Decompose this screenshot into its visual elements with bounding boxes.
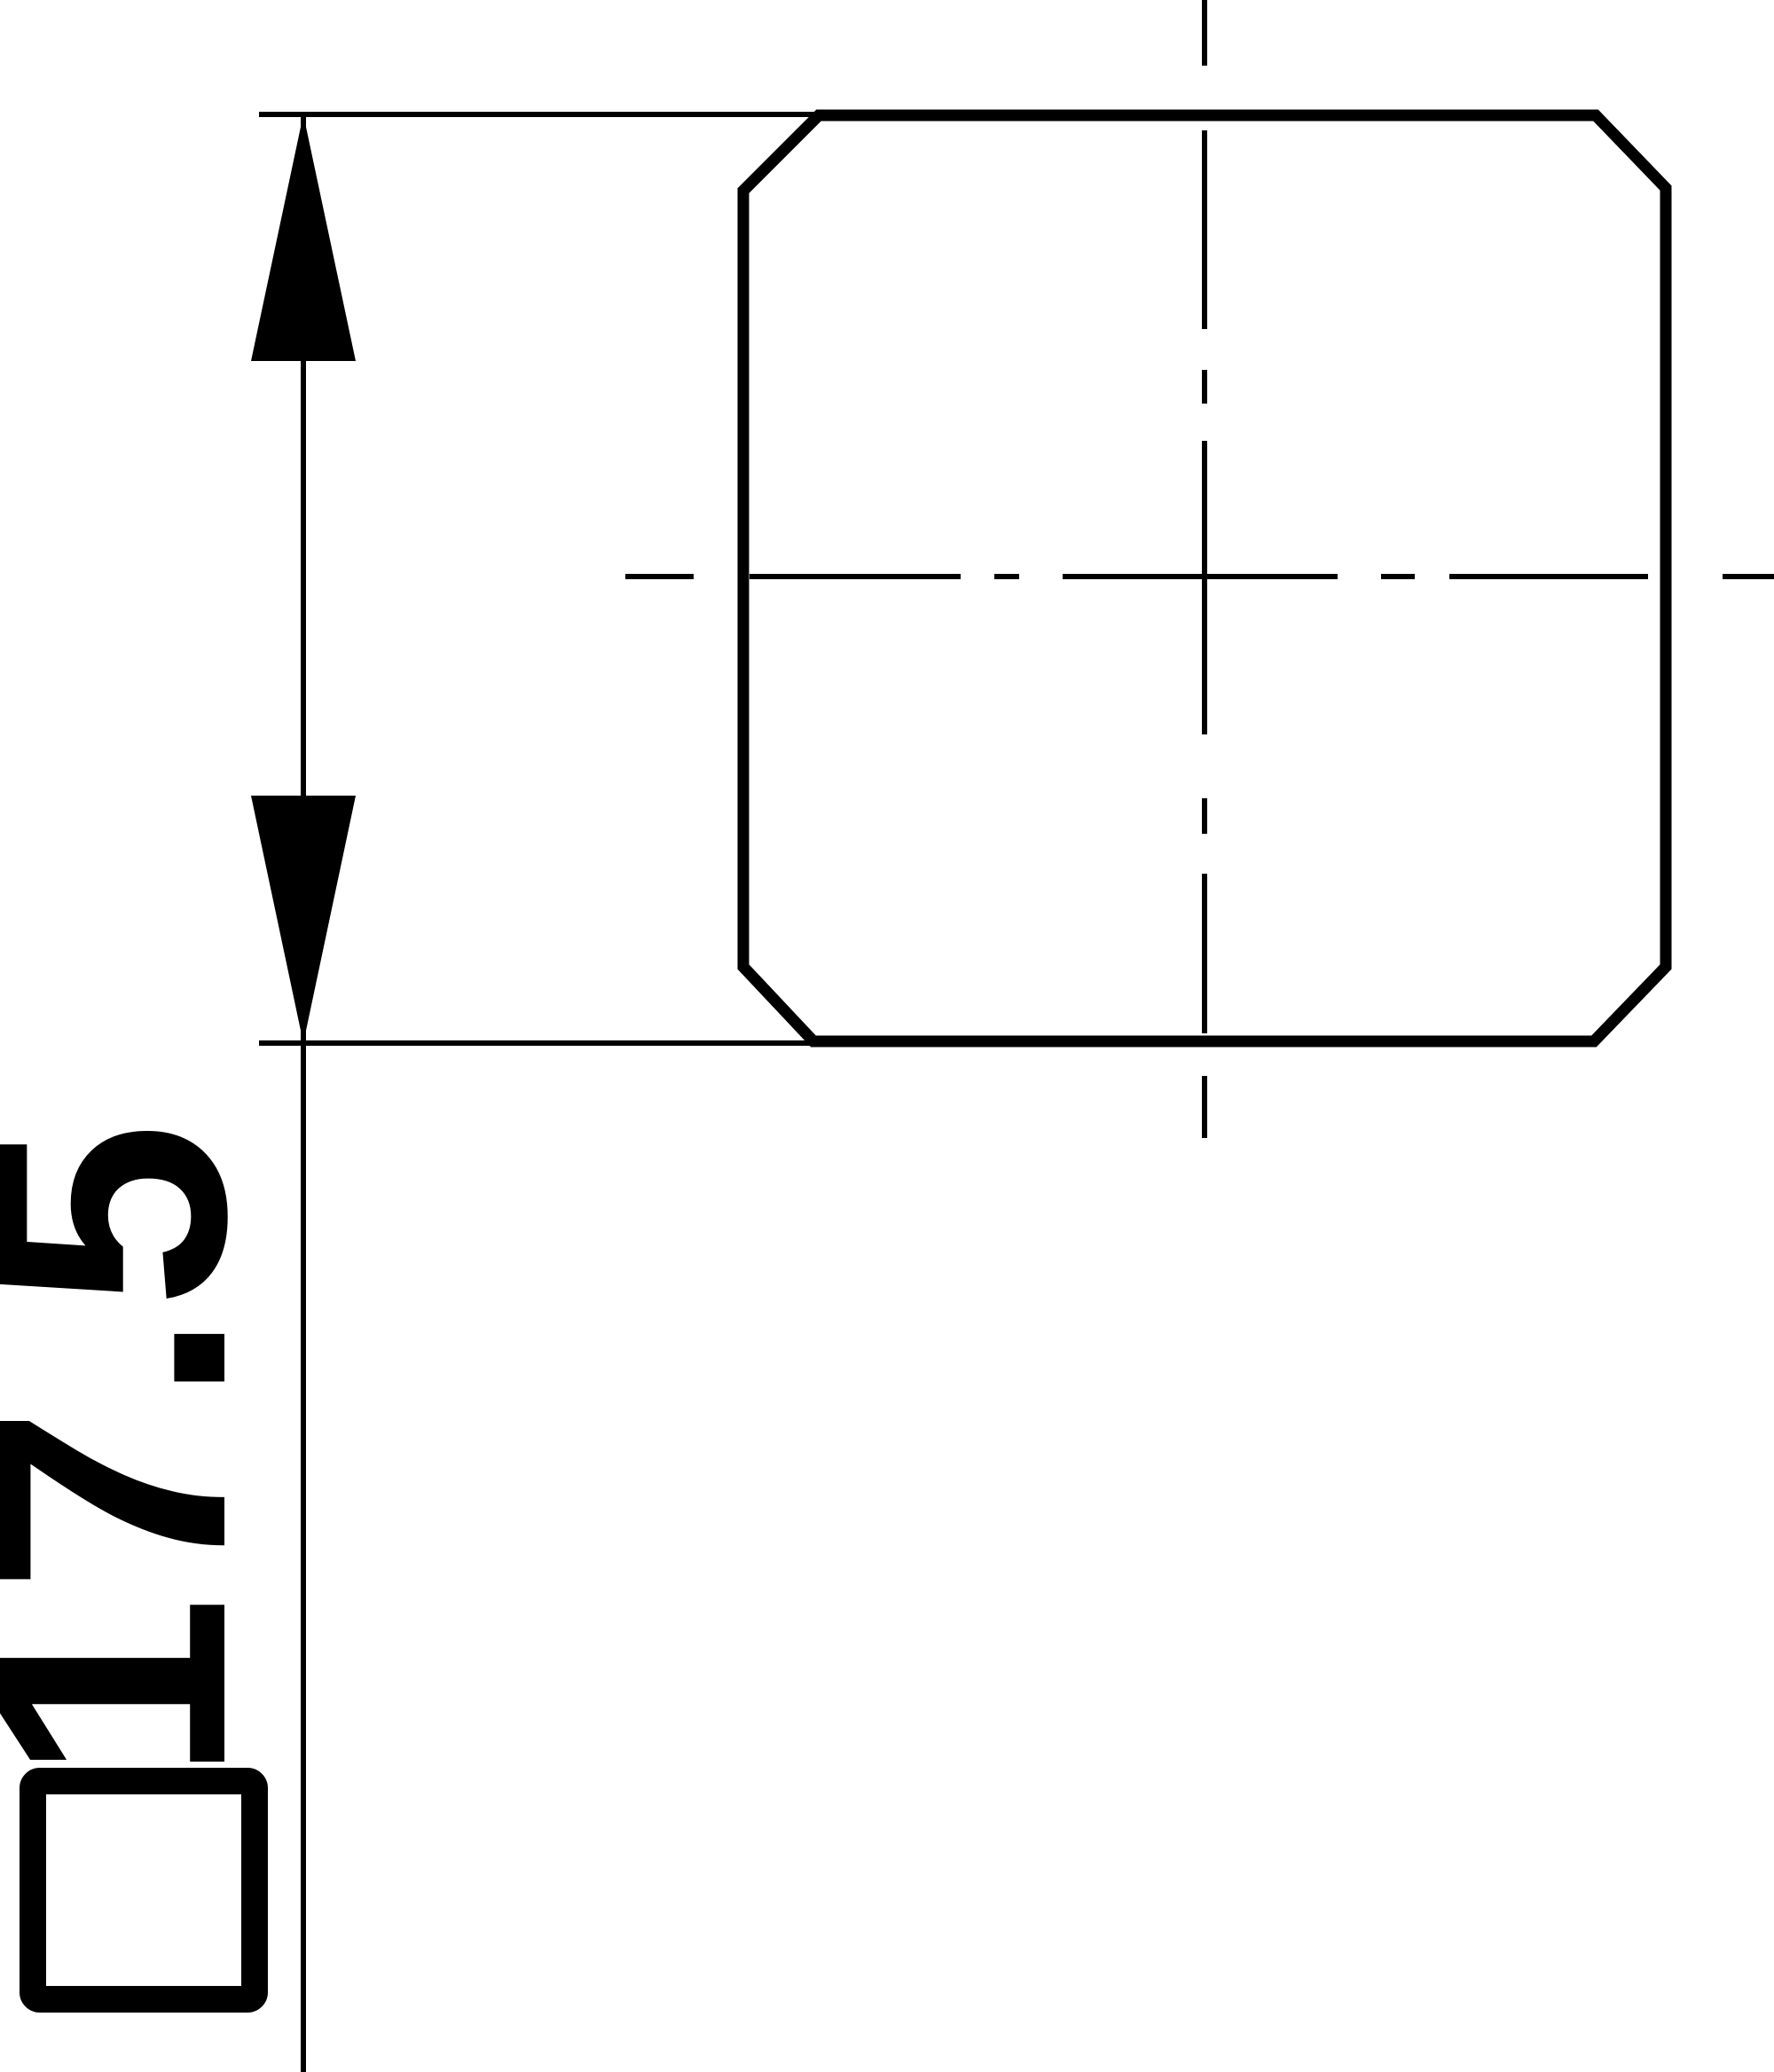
square-symbol-icon	[33, 1781, 255, 1999]
technical-drawing: 17.5	[0, 0, 1774, 2072]
arrowhead-up-icon	[251, 114, 356, 361]
arrowhead-down-icon	[251, 796, 356, 1043]
dimension-value-text: 17.5	[0, 1119, 296, 1783]
drawing-canvas: 17.5	[0, 0, 1774, 2072]
